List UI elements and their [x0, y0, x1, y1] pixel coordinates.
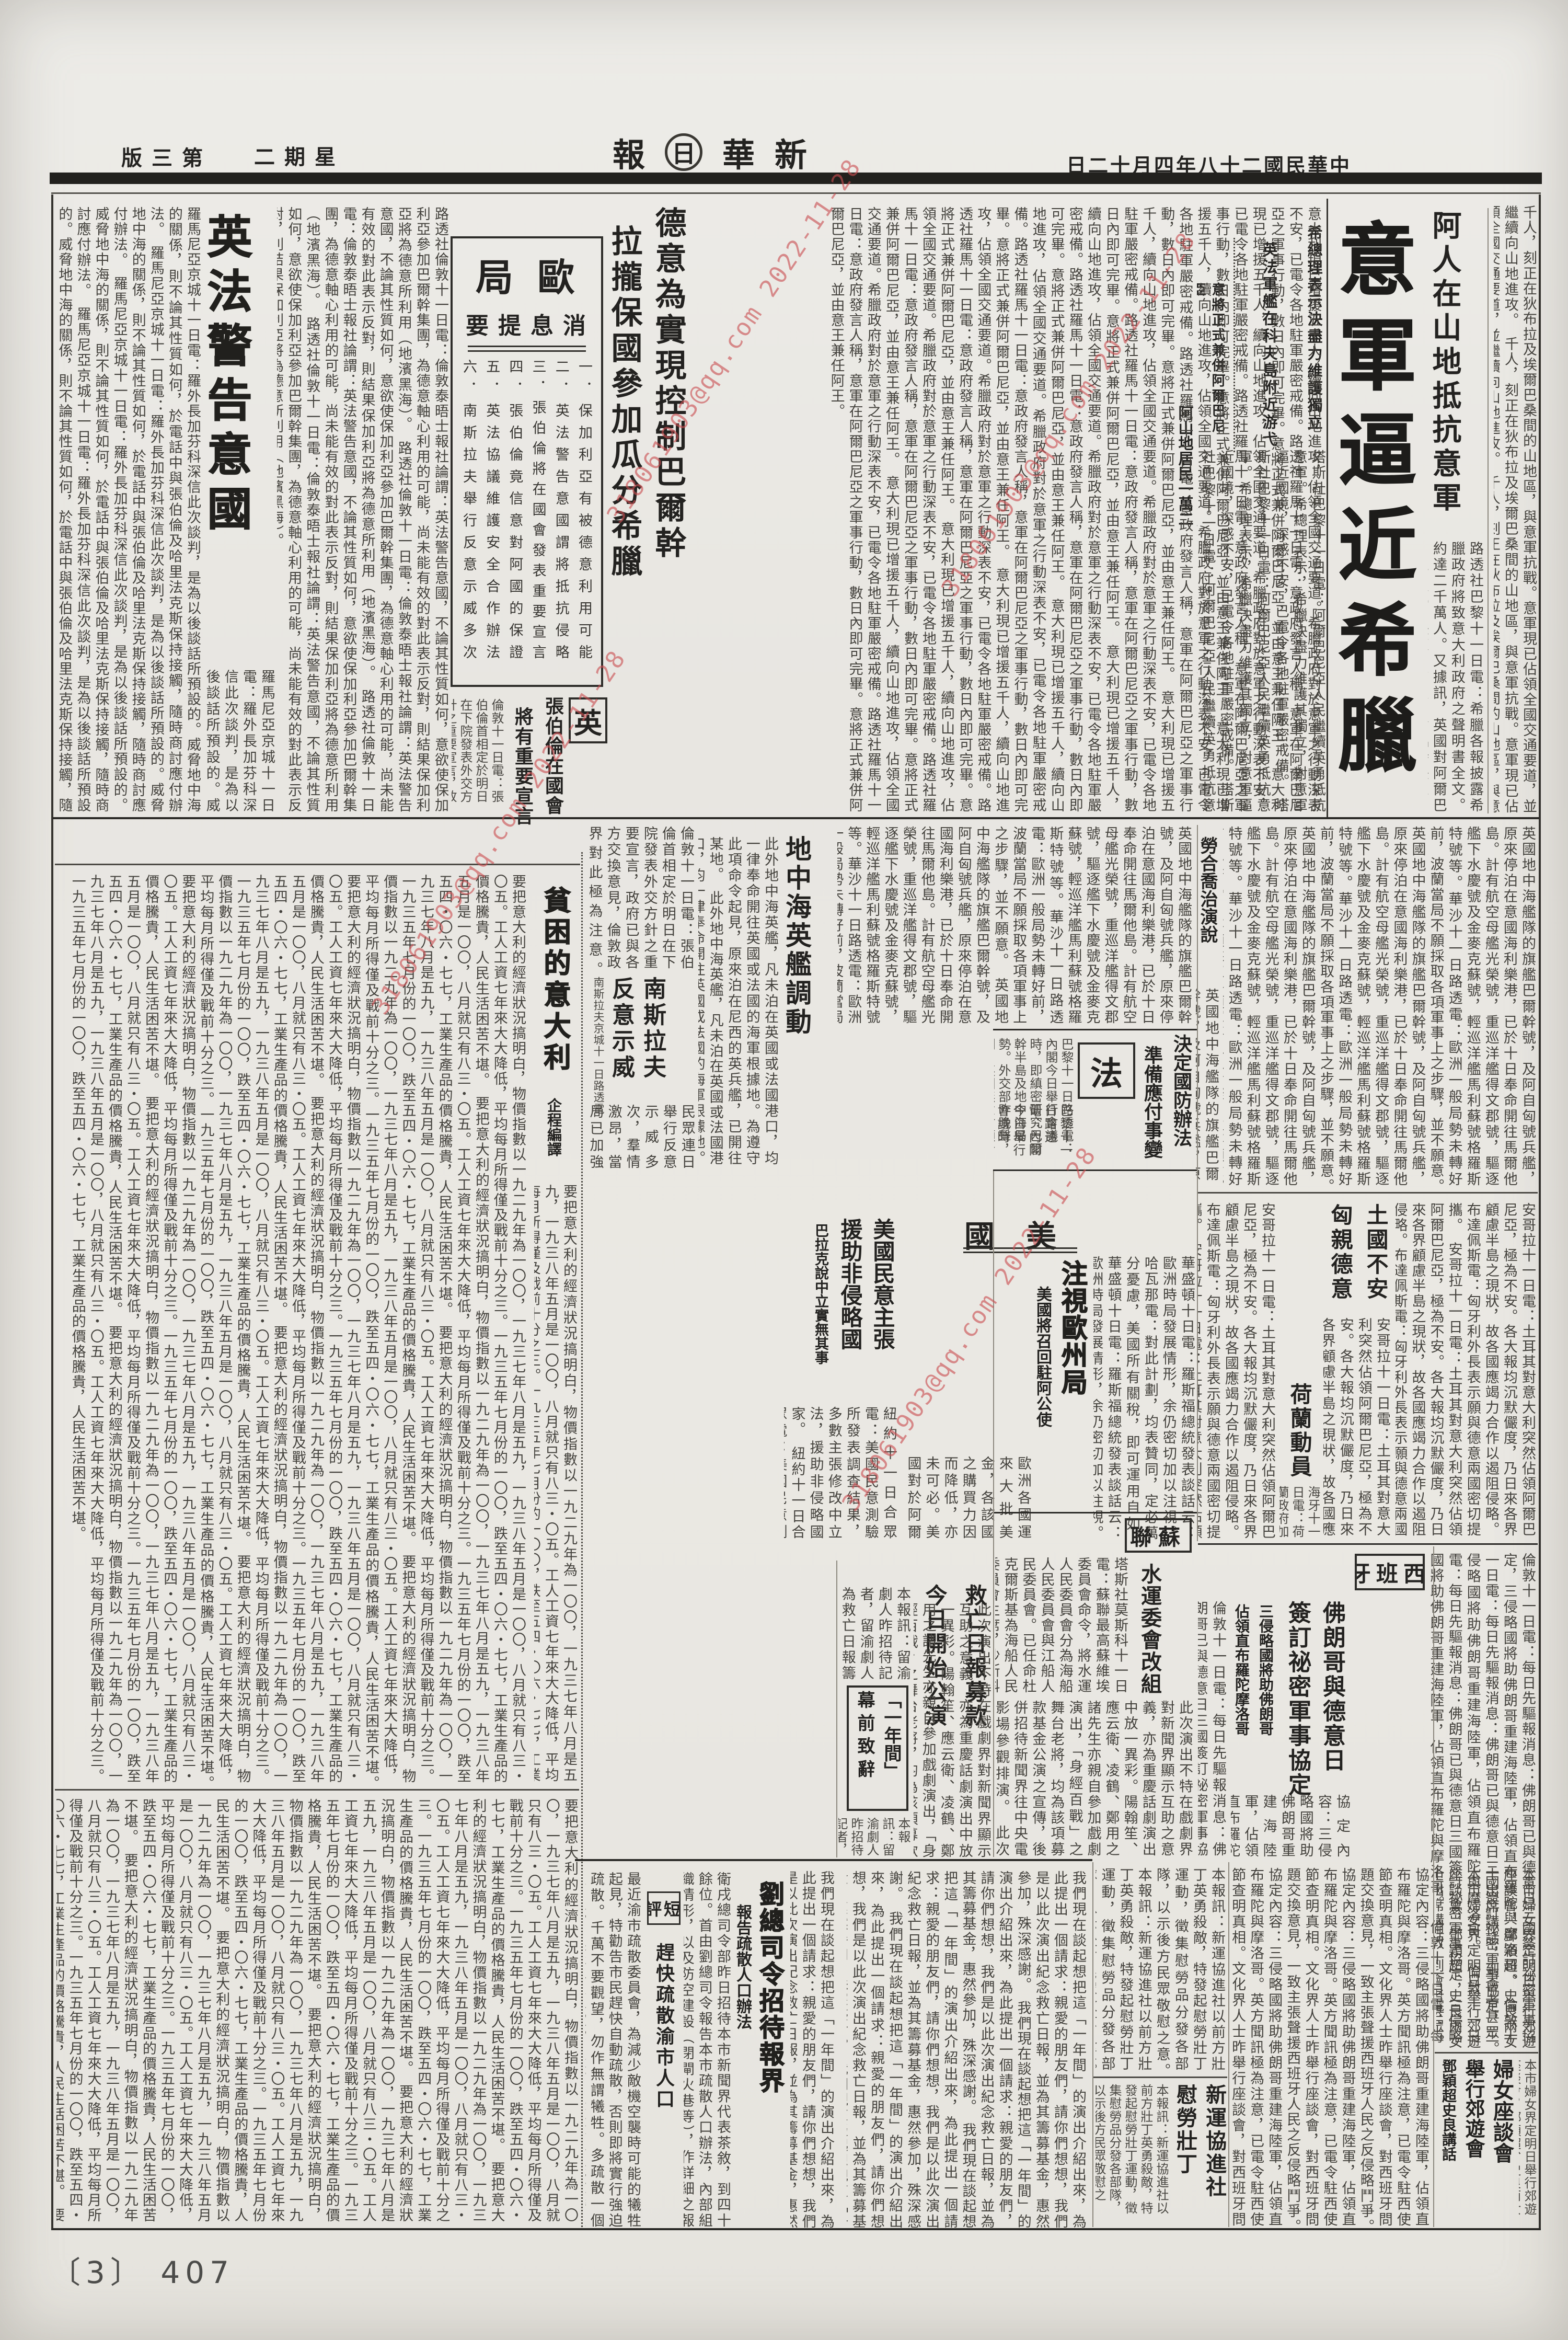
xinyun-body: 本報訊：新運協進社以前方壯丁英勇殺敵，特發起慰勞壯丁運動，徵集慰勞品分發各部隊，… — [1096, 2084, 1169, 2226]
ussr-top-rule — [993, 1512, 1197, 1513]
masthead-bar — [50, 173, 1542, 184]
frame-right — [1539, 194, 1541, 2230]
bottom-right-middle-text: 協定內容：三侵略國將助佛朗哥重建海陸軍，佔領直布羅陀與摩洛哥。英方聞訊極為注意，… — [1231, 1867, 1430, 2227]
women-rule — [1435, 2052, 1538, 2054]
digest-underline — [468, 346, 586, 352]
liu-headline: 劉總司令招待報界 — [754, 1881, 787, 2121]
xinyun-rule — [1093, 2077, 1227, 2078]
women-headline-1: 婦女座談會 — [1489, 2059, 1517, 2176]
frame-top-rule — [51, 192, 1541, 194]
main-story-kicker: 阿人在山地抵抗意軍 — [1426, 210, 1466, 537]
women-headline-2: 舉行郊遊會 — [1460, 2059, 1488, 2176]
short-comment-headline: 趕快疏散渝市人口 — [648, 1943, 677, 2133]
masthead-char-xin: 新 — [775, 129, 807, 176]
archive-page-number: 〔3〕 407 — [50, 2248, 234, 2292]
turkey-hungary-left-text: 安哥拉十一日電：土耳其對意大利突然佔領阿爾巴尼亞，極為不安。各大報均沉默儼度，乃… — [1198, 1202, 1276, 1540]
band3-right-rule — [1198, 1192, 1538, 1194]
liu-subhead: 報告疏散人口辦法 — [733, 1904, 754, 2079]
col-rule-6 — [1433, 1546, 1434, 2227]
band2-right-text: 英國地中海艦隊的旗艦巴爾幹號，及阿自匈號兵艦，原來停泊在意國海利樂港，已於十日奉… — [1223, 826, 1537, 1187]
france-top-rule — [993, 1029, 1197, 1030]
one-year-essay-col: 我們現在談起想把這「一年間」的演出介紹出來，為此提出一個請求：親愛的朋友們，請你… — [790, 1871, 835, 2229]
frame-left — [51, 194, 53, 2230]
us-body-bottom: 歐洲各國運來大批美金，各該國之購買力因而降低，亦未可必。美國對於阿爾巴尼亞一事，… — [907, 1456, 1032, 1540]
digest-items: 一．保加利亞有被德意利用可能 二．英法警告意國謂將抵抗侵略 三．張伯倫將在國會發… — [453, 352, 601, 683]
band2-middle-text: 英國地中海艦隊的旗艦巴爾幹號，及阿自匈號兵艦，原來停泊在意國海利樂港，已於十日奉… — [837, 826, 1193, 1025]
masthead: 報 日 華 新 — [613, 129, 807, 176]
xinyun-headline-1: 新運協進社 — [1201, 2084, 1229, 2212]
col-rule-5 — [1228, 1862, 1229, 2227]
poor-italy-top-rule — [55, 864, 580, 865]
yugoslavia-headline-1: 南斯拉夫 — [638, 977, 669, 1099]
one-year-headline-2: 幕前致辭 — [851, 1691, 877, 1811]
warning-story-left-text: 羅馬尼亞京城十一日電：羅外長加芬科深信此次談判，是為以後談話所預設的。威脅地中海… — [55, 207, 202, 813]
masthead-char-hua: 華 — [722, 129, 755, 176]
spain-body-left: 倫敦十一日電：每日先驅報消息：佛朗哥已與德意日三國簽訂祕密軍事協定，三侵略國將助… — [1198, 1601, 1227, 1857]
col-rule-1 — [1197, 825, 1198, 1541]
poor-italy-body: 要把意大利的經濟狀況搞明白，物價指數以一九二九年為一〇〇，一九三七年八月是五九，… — [56, 874, 527, 1784]
poor-italy-headline: 貧困的意大利 — [534, 886, 574, 1077]
ussr-headline: 水運委會改組 — [1133, 1563, 1165, 1699]
bottom-left-text: 要把意大利的經濟狀況搞明白，物價指數以一九二九年為一〇〇，一九三七年八月是五九，… — [56, 1798, 579, 2223]
band2-right-small: 英國地中海艦隊的旗艦巴爾幹號，及阿自匈號兵艦，原來停泊在意國海利樂港，已於十日奉… — [1196, 988, 1220, 1182]
turkey-headline: 土國不安 — [1359, 1203, 1391, 1308]
france-headline-1: 決定國防辦法 — [1167, 1034, 1195, 1152]
newspaper-page: 版三第 二期星 報 日 華 新 日二十月四年八十二國民華中 千人，刻正在狄布拉及… — [0, 0, 1568, 2340]
one-year-body-below: 本報訊：留渝劇人昨招待記者，留渝劇人為救亡日報籌募基金演出之四幕劇「一年間」，今… — [838, 1817, 910, 1858]
one-year-box: 「一年間」 幕前致辭 — [847, 1685, 908, 1811]
france-headline-2: 準備應付事變 — [1137, 1046, 1166, 1163]
xinyun-headline-2: 慰勞壯丁 — [1172, 2084, 1200, 2188]
ussr-section-label: 聯蘇 — [1125, 1518, 1192, 1553]
jiuwang-body: 本報訊：留渝劇人昨招待記者，留渝劇人為救亡日報籌募基金演出之四幕劇「一年間」，今… — [838, 1587, 912, 1681]
main-story-body-under-kicker: 路透社巴黎十一日電：希臘各報披露希臘政府將致意大利政府之聲明書全文。約達二千萬人… — [1428, 541, 1484, 813]
ussr-body: 塔斯社莫斯科十一日電：蘇聯最高蘇維埃委員會命令，將水運人民委員會分為海船人民委員… — [995, 1557, 1129, 1694]
spain-headline-2: 簽訂祕密軍事協定 — [1282, 1601, 1314, 1805]
europe-digest-title: 局歐 — [474, 247, 601, 302]
one-year-headline-1: 「一年間」 — [878, 1691, 904, 1811]
digest-item-1: 一．保加利亞有被德意利用可能 — [574, 359, 595, 683]
mediterranean-body: 此外地中海英艦，凡未泊在英國或法國港口，均一律奉命開往英國或法國的海軍根據地。為… — [698, 836, 779, 1166]
us-opinion-headline-2: 援助非侵略國 — [833, 1218, 866, 1370]
digest-item-5: 五．英法協議維護安全合作辦法 — [482, 359, 502, 683]
bottom-middle-text: 我們現在談起想把這「一年間」的演出介紹出來，為此提出一個請求：親愛的朋友們，請你… — [847, 1871, 1087, 2229]
spain-body-bottom: 協定內容：三侵略國將助佛朗哥重建海陸軍，佔領直布羅陀與摩洛哥。英方聞訊極為注意，… — [1231, 1794, 1351, 1858]
europe-digest-subtitle: 要提息消 — [460, 307, 601, 340]
us-headline: 注視歐州局勢 — [1057, 1260, 1091, 1417]
digest-item-4: 四．張伯倫竟信意對阿國的保證 — [505, 359, 525, 683]
warning-story-bottom-text: 羅馬尼亞京城十一日電：羅外長加芬科深信此次談判，是為以後談話所預設的。威脅地中海… — [205, 669, 276, 813]
us-body-right: 華盛頓十日電：羅斯福總統發表談話云：歐洲時局發展情形，余仍密切加以注視。哈瓦那電… — [1093, 1256, 1196, 1541]
col-rule-4 — [1092, 1862, 1093, 2227]
short-comment-label: 評短 — [647, 1891, 681, 1925]
band1-rule — [52, 817, 1539, 819]
spain-headline-1: 佛朗哥與德意日 — [1316, 1601, 1348, 1779]
main-story-right-column: 千人，刻正在狄布拉及埃爾巴桑間的山地區，與意軍抗戰。意軍現已佔領全國交通要道，並… — [1494, 205, 1538, 814]
yugoslavia-headline-2: 反意示威 — [606, 977, 638, 1099]
poor-italy-divider — [581, 852, 583, 2227]
main-story-headline: 意軍逼近希臘 — [1333, 219, 1427, 812]
spain-section-label: 牙班西 — [1355, 1554, 1425, 1590]
col-rule-3 — [836, 1561, 837, 1857]
ussr-below-text: 此次演出不特在戲劇界對新聞界顯示互助之意義，亦為重慶話劇演出中放一異彩。陽翰笙、… — [995, 1700, 1194, 1857]
lloyd-george-headline: 勞合喬治演說 — [1196, 836, 1220, 978]
edition-label: 版三第 — [121, 141, 212, 171]
liu-body: 衛戌總司令部昨日招待本市新聞界代表茶敘，到四十餘位。首由劉總司令報告本市疏散人口… — [684, 1872, 732, 2228]
women-subhead: 鄧穎超史良講話 — [1436, 2059, 1458, 2210]
main-story-col-rule — [1488, 208, 1489, 813]
hungary-headline: 匈親德意 — [1323, 1203, 1356, 1308]
main-story-left-rule — [1327, 199, 1328, 817]
warning-story-right-text: 路透社倫敦十一日電：倫敦泰晤士報社論謂：英法警告意國，不論其性質如何，意欲使保加… — [277, 207, 449, 813]
uk-lead-snippet: 倫敦十一日電：張伯倫首相定於明日在下院發表外交方針之重要宣言，政府已與各方交換意… — [452, 698, 504, 815]
turkey-hungary-bottom-text: 安哥拉十一日電：土耳其對意大利突然佔領阿爾巴尼亞，極為不安。各大報均沉默儼度，乃… — [1323, 1317, 1391, 1537]
uk-body-text: 倫敦十一日電：張伯倫首相定於明日在下院發表外交方針之重要宣言，政府已與各方交換意… — [590, 826, 695, 970]
us-opinion-headline-1: 美國民意主張 — [866, 1218, 898, 1370]
poor-italy-body-right: 要把意大利的經濟狀況搞明白，物價指數以一九二九年為一〇〇，一九三七年八月是五九，… — [534, 1184, 578, 1783]
yugoslavia-body: 民眾連日舉行反意示威多次，羣情激昂，當局已加強戒備，並成立物物交換協定。 民眾連… — [590, 1104, 696, 1169]
bottom-xinyun-upper-text: 本報訊：新運協進社以前方壯丁英勇殺敵，特發起慰勞壯丁運動，徵集慰勞品分發各部隊，… — [1096, 1867, 1226, 2071]
digest-item-2: 二．英法警告意國謂將抵抗侵略 — [551, 359, 572, 683]
masthead-sun-logo: 日 — [665, 133, 702, 171]
digest-item-3: 三．張伯倫將在國會發表重要宣言 — [528, 359, 549, 683]
poor-italy-bottom-rule — [55, 1789, 579, 1791]
spain-subhead-2: 佔領直布羅陀摩洛哥 — [1229, 1604, 1251, 1779]
france-body-bottom: 巴黎十一日路透電：內閣今日舉行會議時，即縝密研究巴爾幹半島及地中海局勢。外交部昨… — [994, 1104, 1073, 1167]
bottom-band-rule — [575, 1859, 1092, 1861]
spain-subhead-1: 三侵略國將助佛朗哥 — [1253, 1604, 1275, 1779]
france-section-label: 法 — [1078, 1042, 1135, 1099]
digest-item-6: 六．南斯拉夫舉行反意示威多次 — [459, 359, 479, 683]
poor-italy-credit: 企程編譯 — [544, 1098, 563, 1174]
mediterranean-headline: 地中海英艦調動 — [782, 835, 815, 1050]
germany-italy-headline-2: 拉攏保國參加瓜分希臘 — [609, 225, 647, 606]
holland-body: 海牙十一日電：荷蘭政府加強戒備，已下令動員若干部隊，並嚴密注視國際形勢之演變。 — [1279, 1486, 1320, 1538]
france-bottom-rule — [993, 1169, 1197, 1171]
turkey-hungary-right-text: 安哥拉十一日電：土耳其對意大利突然佔領阿爾巴尼亞，極為不安。各大報均沉默儼度，乃… — [1396, 1202, 1537, 1537]
spain-top-rule — [1198, 1543, 1538, 1545]
women-dateline-col: 本市婦女界定明日舉行郊遊座談會，鄧穎超、史良兩女士出席講話，到會者甚眾。 — [1519, 2059, 1537, 2225]
masthead-char-bao: 報 — [613, 129, 645, 176]
holland-headline: 荷蘭動員 — [1284, 1383, 1315, 1482]
warning-story-headline: 英法警告意國 — [204, 213, 258, 663]
women-upper-text: 本市婦女界定明日舉行郊遊座談會，鄧穎超、史良兩女士出席講話，到會者甚眾。 本市婦… — [1436, 1867, 1537, 2049]
short-comment-body: 最近渝市疏散委員會，為減少敵機空襲時可能的犧牲起見，特勸告市民趕快自動疏散，否則… — [585, 1872, 642, 2228]
us-subhead: 美國將召回駐阿公使 — [1032, 1286, 1054, 1448]
one-year-body: 此次演出不特在戲劇界對新聞界顯示互助之意義，亦為重慶話劇演出中放一異彩。陽翰笙、… — [914, 1602, 992, 1859]
weekday-label: 二期星 — [254, 140, 345, 170]
europe-digest-box: 局歐 要提息消 一．保加利亞有被德意利用可能 二．英法警告意國謂將抵抗侵略 三．… — [451, 236, 603, 687]
us-opinion-subhead: 巴拉克說中立實無其事 — [811, 1223, 831, 1396]
